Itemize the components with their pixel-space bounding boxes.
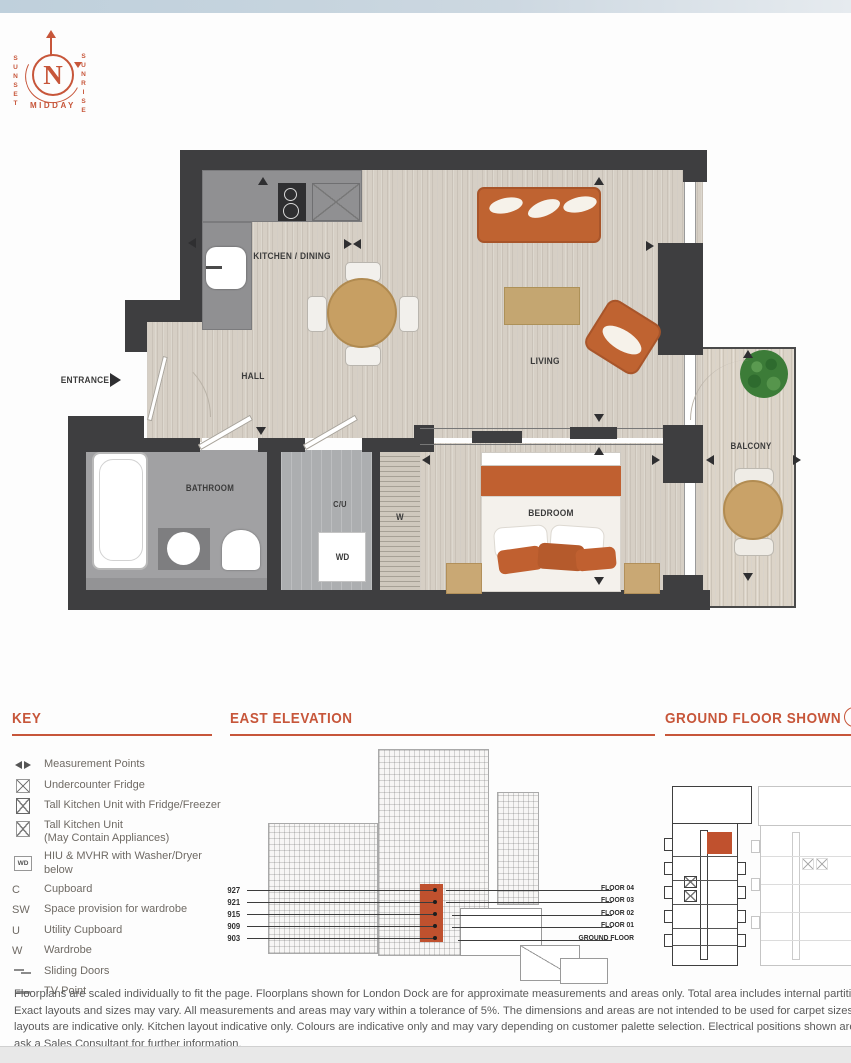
disclaimer-line: Exact layouts and sizes may vary. All me… — [14, 1003, 851, 1020]
compass-north-arrow-icon — [46, 30, 56, 38]
key-item: SW Space provision for wardrobe — [12, 902, 228, 918]
wall-segment — [125, 300, 202, 322]
gf-neighbour-line — [761, 856, 851, 857]
floorplan: WD KITCHEN / DINING HALL LIVING BATHROOM… — [0, 0, 851, 1062]
gf-neighbour-block — [760, 825, 851, 966]
bathtub-inner — [99, 459, 143, 561]
key-item: Sliding Doors — [12, 964, 228, 980]
leader-dot — [433, 912, 437, 916]
leader-line — [247, 914, 435, 915]
key-item: Tall Kitchen Unit (May Contain Appliance… — [12, 819, 228, 846]
wall-segment — [372, 450, 380, 592]
bed-headboard — [481, 452, 621, 466]
wall-segment — [68, 590, 710, 610]
unit-number: 903 — [227, 933, 240, 943]
unit-number: 915 — [227, 909, 240, 919]
balcony-plant — [740, 350, 788, 398]
kitchen-dining-label: KITCHEN / DINING — [253, 251, 331, 262]
bed-pillow — [549, 524, 605, 560]
sliding-door-panel — [570, 427, 617, 439]
gf-core — [684, 876, 697, 888]
kitchen-counter-left — [202, 222, 252, 330]
bath-sink-unit — [158, 528, 210, 570]
bath-sink-bowl — [167, 532, 200, 565]
key-item: W Wardrobe — [12, 943, 228, 959]
leader-dot — [433, 900, 437, 904]
disclaimer: Floorplans are scaled individually to fi… — [14, 986, 851, 1052]
key-item: U Utility Cupboard — [12, 923, 228, 939]
measure-arrow-icon — [353, 239, 361, 249]
gf-balcony-tab — [737, 934, 746, 947]
cupboard-symbol: C — [12, 884, 20, 896]
elevation-highlight — [420, 884, 443, 942]
gf-room-line — [673, 945, 737, 946]
sofa-pillow — [488, 195, 524, 217]
wall-segment — [658, 243, 703, 355]
bed-cushion — [497, 545, 544, 575]
balcony-chair — [734, 468, 774, 486]
floor-label: FLOOR 04 — [587, 883, 634, 892]
measure-arrow-icon — [652, 455, 660, 465]
elevation-tower-right — [497, 792, 539, 905]
compass-arc — [18, 42, 88, 111]
floor-label: FLOOR 01 — [587, 920, 634, 929]
balcony-label: BALCONY — [730, 441, 771, 451]
gf-balcony-tab — [737, 862, 746, 875]
compass-arc-arrow-icon — [74, 62, 82, 68]
armchair-seat — [598, 320, 646, 360]
gf-neighbour-corridor — [792, 832, 800, 960]
key-item: Undercounter Fridge — [12, 778, 228, 794]
floor-main — [197, 168, 703, 438]
compass: N SUNSET SUNRISE MIDDAY — [0, 0, 851, 1062]
wall-segment — [663, 575, 703, 595]
gf-building-block — [672, 823, 738, 966]
gf-highlighted-unit — [707, 832, 732, 854]
dining-chair — [345, 262, 381, 282]
hall-label: HALL — [241, 371, 264, 382]
floor-balcony — [703, 347, 796, 608]
measure-arrow-icon — [422, 455, 430, 465]
leader-line — [446, 890, 612, 891]
unit-number: 927 — [227, 885, 240, 895]
entrance-door-leaf — [147, 356, 168, 421]
cupboard-door-leaf — [303, 415, 358, 450]
measure-arrow-icon — [258, 177, 268, 185]
tall-kitchen-unit — [312, 183, 360, 221]
gf-building-block — [672, 786, 752, 824]
floor-label: FLOOR 03 — [587, 895, 634, 904]
wardrobe-symbol: W — [12, 945, 22, 957]
leader-line — [247, 938, 435, 939]
tall-kitchen-unit-icon — [16, 821, 30, 837]
bathroom-vanity-strip — [86, 578, 267, 592]
window — [684, 355, 696, 425]
floor-label: GROUND FLOOR — [578, 933, 634, 942]
disclaimer-line: Floorplans are scaled individually to fi… — [14, 986, 851, 1003]
gf-corridor — [700, 830, 708, 960]
gf-neighbour-line — [761, 884, 851, 885]
gf-neighbour-block — [758, 786, 851, 826]
wardrobe-label: W — [396, 512, 404, 522]
dining-chair — [345, 346, 381, 366]
measure-arrow-icon — [594, 414, 604, 422]
bed-body — [481, 496, 621, 592]
floor-cupboard — [281, 450, 372, 592]
wall-segment — [267, 450, 281, 592]
key-list: Measurement Points Undercounter Fridge T… — [12, 757, 228, 1005]
measure-arrow-icon — [706, 455, 714, 465]
gf-room-line — [673, 856, 737, 857]
dining-chair — [307, 296, 327, 332]
wall-segment — [258, 438, 305, 452]
sliding-door-track — [420, 428, 663, 429]
gf-neighbour-tab — [751, 916, 760, 929]
gf-balcony-tab — [737, 886, 746, 899]
wardrobe-strip — [380, 450, 420, 592]
ground-floor-panel: GROUND FLOOR SHOWN — [0, 0, 851, 1062]
wd-box-icon: WD — [14, 856, 32, 871]
unit-number: 921 — [227, 897, 240, 907]
bottom-strip — [0, 1046, 851, 1063]
measurement-points-icon — [12, 761, 34, 769]
balcony-door-swing — [690, 360, 749, 420]
cupboard-label: C/U — [333, 499, 347, 509]
gf-neighbour-core — [816, 858, 828, 870]
key-item: Measurement Points — [12, 757, 228, 773]
measure-arrow-icon — [256, 427, 266, 435]
sofa-pillow — [562, 194, 598, 216]
gf-balcony-tab — [664, 934, 673, 947]
measure-arrow-icon — [594, 577, 604, 585]
sliding-doors-icon — [12, 967, 34, 977]
undercounter-fridge-icon — [16, 779, 30, 793]
washer-dryer-box: WD — [318, 532, 366, 582]
gf-core — [684, 890, 697, 902]
gf-neighbour-line — [761, 940, 851, 941]
key-title: KEY — [12, 710, 41, 727]
leader-dot — [433, 888, 437, 892]
dining-table — [327, 278, 397, 348]
hob-burner — [283, 203, 299, 219]
elevation-rule — [230, 734, 655, 736]
ground-floor-title: GROUND FLOOR SHOWN — [665, 710, 841, 727]
wall-segment — [86, 438, 200, 452]
leader-line — [458, 940, 612, 941]
balcony-table — [723, 480, 783, 540]
elevation-lowrise — [560, 958, 608, 984]
floor-bathroom — [86, 450, 267, 592]
living-label: LIVING — [530, 356, 559, 367]
leader-dot — [433, 936, 437, 940]
elevation-title: EAST ELEVATION — [230, 710, 353, 727]
compass-north-line — [50, 38, 52, 55]
key-item: Tall Kitchen Unit with Fridge/Freezer — [12, 798, 228, 814]
key-rule — [12, 734, 212, 736]
nightstand — [446, 563, 482, 594]
bed-pillow — [493, 524, 549, 560]
elevation-tower-center — [378, 749, 489, 956]
floor-hall — [147, 322, 202, 442]
elevation-lowrise — [460, 908, 542, 956]
measure-arrow-icon — [188, 238, 196, 248]
elevation-lowrise — [520, 945, 580, 981]
bathtub — [92, 452, 148, 570]
unit-number: 909 — [227, 921, 240, 931]
space-wardrobe-symbol: SW — [12, 904, 30, 916]
coffee-table — [504, 287, 580, 325]
measure-arrow-icon — [646, 241, 654, 251]
kitchen-faucet — [206, 266, 222, 269]
ground-floor-rule — [665, 734, 851, 736]
gf-room-line — [673, 880, 737, 881]
wall-segment — [125, 322, 147, 352]
window — [684, 483, 696, 575]
key-item: C Cupboard — [12, 882, 228, 898]
wall-segment — [683, 150, 707, 182]
gf-room-line — [673, 928, 737, 929]
key-item: WD HIU & MVHR with Washer/Dryer below — [12, 850, 228, 877]
utility-cupboard-symbol: U — [12, 925, 20, 937]
compass-n-letter: N — [32, 56, 74, 94]
compass-midday-label: MIDDAY — [30, 101, 76, 110]
armchair — [581, 296, 664, 378]
measure-arrow-icon — [594, 177, 604, 185]
gf-balcony-tab — [664, 838, 673, 851]
floorplan-page: { "compass": {"north": "N", "sunset": "S… — [0, 0, 851, 1062]
bedroom-label: BEDROOM — [528, 508, 574, 519]
measure-arrow-icon — [743, 573, 753, 581]
compass-sunset-label: SUNSET — [12, 55, 19, 105]
key-panel: KEY Measurement Points Undercounter Frid… — [0, 0, 851, 1062]
leader-line — [247, 902, 435, 903]
measure-arrow-icon — [743, 350, 753, 358]
compass-sunrise-label: SUNRISE — [80, 53, 87, 109]
measure-arrow-icon — [594, 447, 604, 455]
elevation-panel: EAST ELEVATION 927 921 915 909 903 FLOOR… — [0, 0, 851, 1062]
gf-balcony-tab — [664, 910, 673, 923]
bed-cushion — [537, 542, 585, 571]
leader-line — [452, 927, 612, 928]
entrance-door-swing — [152, 354, 211, 417]
sliding-door-panel — [472, 431, 522, 443]
bathroom-door-leaf — [198, 415, 253, 450]
gf-neighbour-line — [761, 912, 851, 913]
window — [684, 182, 696, 243]
bathroom-label: BATHROOM — [186, 483, 234, 493]
bed-cushion — [575, 546, 617, 571]
wall-segment — [197, 150, 707, 170]
sliding-door-track — [420, 444, 663, 445]
washer-dryer-label: WD — [335, 552, 349, 562]
wall-segment — [180, 150, 202, 322]
wall-segment — [414, 425, 434, 452]
gf-neighbour-core — [802, 858, 814, 870]
leader-line — [452, 915, 612, 916]
leader-dot — [433, 924, 437, 928]
floor-label: FLOOR 02 — [587, 908, 634, 917]
fridge-freezer-unit-icon — [16, 798, 30, 814]
gf-balcony-tab — [737, 910, 746, 923]
compass-circle — [32, 54, 74, 96]
kitchen-sink — [206, 247, 246, 289]
sofa-pillow — [525, 195, 562, 222]
nightstand — [624, 563, 660, 594]
measure-arrow-icon — [793, 455, 801, 465]
disclaimer-line: layouts are indicative only. Kitchen lay… — [14, 1019, 851, 1036]
top-photo-strip — [0, 0, 851, 13]
gf-neighbour-tab — [751, 878, 760, 891]
hob — [278, 183, 306, 221]
wall-segment — [68, 416, 144, 450]
wall-segment — [68, 450, 86, 610]
floor-bedroom — [420, 443, 703, 593]
gf-room-line — [673, 904, 737, 905]
gf-neighbour-tab — [751, 840, 760, 853]
gf-balcony-tab — [664, 886, 673, 899]
elevation-tower-left — [268, 823, 378, 954]
toilet — [222, 530, 260, 570]
measure-arrow-icon — [344, 239, 352, 249]
entrance-label: ENTRANCE — [61, 375, 110, 386]
bed-runner — [481, 466, 621, 496]
hob-burner — [284, 188, 297, 201]
north-marker-icon — [844, 707, 851, 727]
wall-segment — [362, 438, 420, 452]
wall-segment — [663, 425, 703, 483]
balcony-chair — [734, 538, 774, 556]
sofa — [477, 187, 601, 243]
dining-chair — [399, 296, 419, 332]
leader-line — [446, 902, 612, 903]
kitchen-counter-top — [202, 170, 362, 222]
leader-line — [247, 890, 435, 891]
entrance-arrow-icon — [110, 373, 121, 387]
leader-line — [247, 926, 435, 927]
gf-balcony-tab — [664, 862, 673, 875]
